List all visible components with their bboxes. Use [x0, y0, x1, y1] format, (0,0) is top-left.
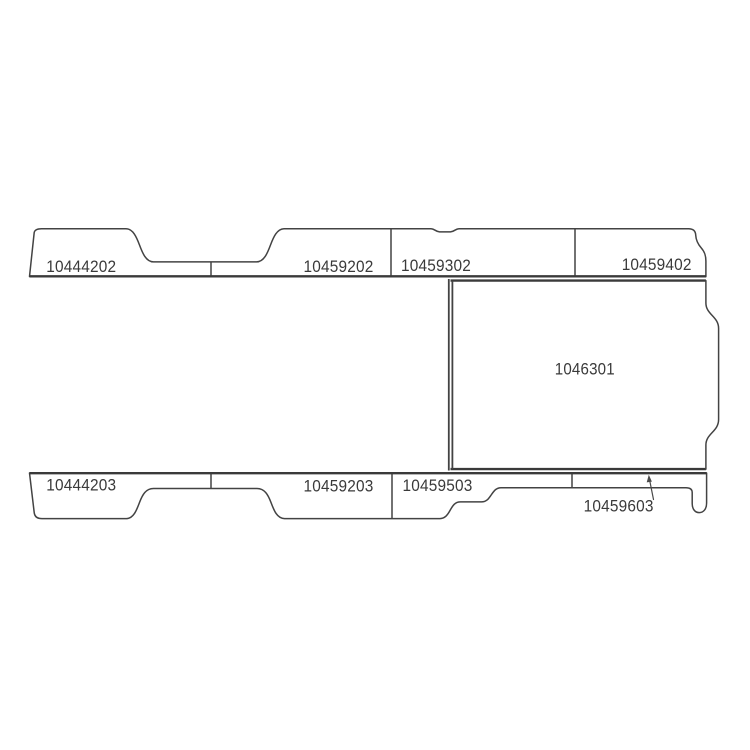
label-top-section-3: 10459302 — [401, 256, 471, 275]
floor-panel-right-edge — [706, 281, 719, 470]
label-bottom-section-1: 10444203 — [46, 475, 116, 494]
panel-diagram-canvas: 10444202 10459202 10459302 10459402 1046… — [0, 0, 750, 750]
label-top-section-2: 10459202 — [304, 257, 374, 276]
leader-arrowhead-icon — [647, 475, 652, 483]
label-bottom-section-2: 10459203 — [304, 476, 374, 495]
label-floor-panel: 1046301 — [555, 360, 615, 379]
panel-diagram: 10444202 10459202 10459302 10459402 1046… — [0, 0, 750, 750]
label-top-section-4: 10459402 — [622, 255, 692, 274]
label-bottom-section-3: 10459503 — [403, 476, 473, 495]
label-bottom-section-4: 10459603 — [584, 496, 654, 515]
label-top-section-1: 10444202 — [46, 257, 116, 276]
